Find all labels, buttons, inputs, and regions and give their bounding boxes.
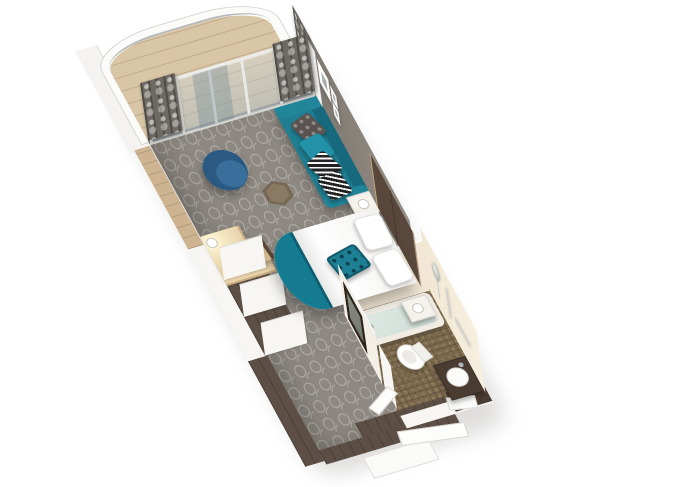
frame-art bbox=[321, 71, 328, 92]
stateroom-floorplan-render bbox=[0, 0, 680, 487]
shower-grab-bar bbox=[446, 286, 452, 318]
towel-bar bbox=[455, 316, 471, 347]
room-plan bbox=[66, 0, 545, 487]
sink-bowl bbox=[443, 365, 473, 389]
table-lamp-icon bbox=[410, 302, 426, 315]
